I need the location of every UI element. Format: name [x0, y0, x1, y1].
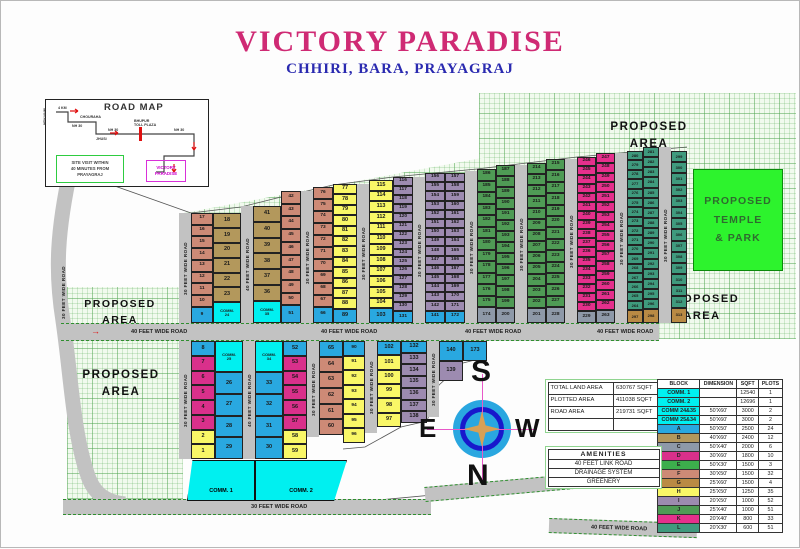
plot-cell-12: 12 — [191, 272, 213, 284]
plot-cell-40: 40 — [253, 222, 281, 238]
plot-cell-95: 95 — [343, 414, 365, 429]
plot-cell-228: 228 — [546, 307, 565, 323]
road-label: 40 FEET WIDE ROAD — [131, 329, 187, 335]
commercial-block: COMM. 2 — [255, 460, 347, 501]
plot-cell-143: 143 — [425, 292, 445, 301]
plot-cell-38: 38 — [253, 253, 281, 269]
plot-cell-248: 248 — [596, 163, 615, 173]
plot-cell-26: 26 — [215, 372, 243, 394]
plot-cell-COMM.-24: COMM. 24 — [213, 302, 241, 323]
plot-cell-304: 304 — [671, 207, 687, 218]
plot-cell-266: 266 — [627, 282, 643, 291]
road-vertical: 30 FEET WIDE ROAD — [179, 213, 191, 323]
plot-cell-280: 280 — [627, 151, 643, 160]
site-visit-note: SITE VISIT WITHIN 40 MINUTES FROM PRAYAG… — [56, 155, 124, 183]
plot-cell-232: 232 — [577, 284, 596, 293]
plot-cell-31: 31 — [255, 416, 283, 438]
plot-cell-122: 122 — [393, 231, 413, 240]
plot-cell-197: 197 — [496, 275, 515, 286]
plot-cell-27: 27 — [215, 394, 243, 416]
plot-cell-309: 309 — [671, 263, 687, 274]
plot-cell-83: 83 — [333, 246, 357, 256]
plot-cell-220: 220 — [546, 216, 565, 227]
plot-cell-20: 20 — [213, 243, 241, 258]
plot-column: 17161514131211109 — [191, 213, 213, 323]
plot-cell-63: 63 — [319, 372, 343, 388]
plot-cell-196: 196 — [496, 264, 515, 275]
plot-cell-204: 204 — [527, 274, 546, 285]
plot-cell-284: 284 — [643, 177, 659, 187]
plot-cell-103: 103 — [369, 308, 393, 323]
plot-cell-223: 223 — [546, 250, 565, 261]
plot-cell-305: 305 — [671, 218, 687, 229]
plot-cell-88: 88 — [333, 298, 357, 308]
plot-cell-5: 5 — [191, 385, 215, 400]
plot-cell-221: 221 — [546, 227, 565, 238]
plot-cell-145: 145 — [425, 274, 445, 283]
plot-cell-162: 162 — [445, 219, 465, 228]
plot-cell-150: 150 — [425, 228, 445, 237]
legend-row: A50'X50'250024 — [658, 425, 783, 434]
plot-cell-80: 80 — [333, 215, 357, 225]
plot-cell-10: 10 — [191, 295, 213, 307]
plot-cell-86: 86 — [333, 278, 357, 288]
plot-cell-147: 147 — [425, 256, 445, 265]
plot-cell-301: 301 — [671, 173, 687, 184]
plot-cell-166: 166 — [445, 256, 465, 265]
legend-table: BLOCKDIMENSIONSQFTPLOTSCOMM. 1125401COMM… — [657, 379, 783, 533]
plot-cell-237: 237 — [577, 238, 596, 247]
plot-cell-215: 215 — [546, 159, 565, 170]
plot-cell-299: 299 — [671, 151, 687, 162]
plot-cell-90: 90 — [343, 341, 365, 356]
legend-row: H25'X50'125035 — [658, 488, 783, 497]
legend-row: K20'X40'80033 — [658, 515, 783, 524]
plot-cell-229: 229 — [577, 311, 596, 323]
plot-cell-132: 132 — [401, 341, 427, 353]
legend-row: F30'X50'150032 — [658, 470, 783, 479]
plot-cell-200: 200 — [496, 308, 515, 323]
plot-column: 181920212223COMM. 24 — [213, 213, 241, 323]
plot-cell-69: 69 — [313, 271, 333, 283]
plot-cell-129: 129 — [393, 293, 413, 302]
legend-row: I20'X50'100052 — [658, 497, 783, 506]
plot-cell-99: 99 — [377, 384, 401, 398]
plot-cell-181: 181 — [477, 227, 496, 239]
plot-column: 186185184183182181180179178177176175174 — [477, 169, 496, 323]
plot-cell-178: 178 — [477, 261, 496, 273]
plot-cell-33: 33 — [255, 372, 283, 394]
plot-cell-167: 167 — [445, 265, 465, 274]
plot-cell-177: 177 — [477, 273, 496, 285]
plot-cell-241: 241 — [577, 202, 596, 211]
compass-rose — [453, 400, 511, 458]
plot-cell-COMM.-35: COMM. 35 — [253, 301, 281, 323]
plot-cell-76: 76 — [313, 187, 333, 199]
plot-cell-213: 213 — [527, 174, 546, 185]
plot-cell-8: 8 — [191, 341, 215, 356]
plot-cell-48: 48 — [281, 267, 301, 280]
road-vertical: 30 FEET WIDE ROAD — [357, 184, 369, 323]
road-map-label: NH 30 — [108, 129, 118, 133]
plot-cell-29: 29 — [215, 437, 243, 459]
plot-cell-28: 28 — [215, 416, 243, 438]
plot-cell-252: 252 — [596, 202, 615, 212]
plot-cell-202: 202 — [527, 297, 546, 308]
plot-cell-84: 84 — [333, 257, 357, 267]
plot-cell-210: 210 — [527, 208, 546, 219]
legend-row: D30'X60'180010 — [658, 452, 783, 461]
plot-cell-289: 289 — [643, 228, 659, 238]
plot-cell-236: 236 — [577, 247, 596, 256]
plot-cell-251: 251 — [596, 192, 615, 202]
plot-cell-188: 188 — [496, 176, 515, 187]
plot-cell-293: 293 — [643, 269, 659, 279]
plot-cell-92: 92 — [343, 370, 365, 385]
plot-cell-151: 151 — [425, 219, 445, 228]
plot-cell-52: 52 — [283, 341, 307, 356]
road-vertical: 40 FEET WIDE ROAD — [241, 206, 253, 323]
plot-cell-198: 198 — [496, 286, 515, 297]
plot-cell-126: 126 — [393, 266, 413, 275]
plot-cell-303: 303 — [671, 196, 687, 207]
plot-cell-261: 261 — [596, 290, 615, 300]
plot-cell-81: 81 — [333, 226, 357, 236]
plot-cell-46: 46 — [281, 242, 301, 255]
plot-cell-64: 64 — [319, 357, 343, 373]
plot-cell-21: 21 — [213, 258, 241, 273]
road-vertical: 30 FEET WIDE ROAD — [515, 165, 527, 323]
plot-cell-206: 206 — [527, 252, 546, 263]
road-vertical: 30 FEET WIDE ROAD — [301, 191, 313, 323]
plot-cell-107: 107 — [369, 266, 393, 277]
road-vertical: 30 FEET WIDE ROAD — [365, 341, 377, 433]
plot-cell-240: 240 — [577, 211, 596, 220]
plot-column: 102101100999897 — [377, 341, 401, 427]
plot-cell-311: 311 — [671, 285, 687, 296]
site-plan-page: { "title": "VICTORY PARADISE", "subtitle… — [0, 0, 800, 548]
plot-cell-144: 144 — [425, 283, 445, 292]
plot-cell-270: 270 — [627, 245, 643, 254]
plot-cell-125: 125 — [393, 257, 413, 266]
plot-cell-39: 39 — [253, 238, 281, 254]
compass-north: N — [467, 459, 489, 493]
plot-cell-208: 208 — [527, 230, 546, 241]
plot-cell-161: 161 — [445, 210, 465, 219]
legend-row: C50'X40'20006 — [658, 443, 783, 452]
plot-cell-312: 312 — [671, 296, 687, 307]
plot-cell-190: 190 — [496, 198, 515, 209]
plot-cell-242: 242 — [577, 193, 596, 202]
area-table-frame: TOTAL LAND AREA630767 SQFTPLOTTED AREA41… — [545, 379, 664, 433]
amenities-table: AMENITIES40 FEET LINK ROADDRAINAGE SYSTE… — [548, 449, 660, 487]
compass-south: S — [471, 355, 491, 389]
plot-column: 2993003013023033043053063073083093103113… — [671, 151, 687, 323]
plot-cell-47: 47 — [281, 255, 301, 268]
plot-cell-59: 59 — [283, 444, 307, 459]
plot-cell-114: 114 — [369, 191, 393, 202]
plot-cell-286: 286 — [643, 198, 659, 208]
plot-cell-259: 259 — [596, 271, 615, 281]
area-table-row — [548, 418, 661, 430]
road-map-inset: ROAD MAP NEW NAINI SITE VISIT WITHIN 40 … — [45, 99, 209, 187]
plot-cell-235: 235 — [577, 257, 596, 266]
plot-cell-9: 9 — [191, 307, 213, 323]
plot-cell-260: 260 — [596, 280, 615, 290]
compass-east: E — [419, 413, 436, 444]
plot-cell-282: 282 — [643, 157, 659, 167]
plot-cell-43: 43 — [281, 204, 301, 217]
plot-cell-13: 13 — [191, 260, 213, 272]
plot-cell-265: 265 — [627, 292, 643, 301]
plot-cell-246: 246 — [577, 157, 596, 166]
road-map-label: NH 30 — [72, 125, 82, 129]
legend-row: COMM 25&3450'X60'30002 — [658, 416, 783, 425]
plot-cell-COMM.-34: COMM. 34 — [255, 341, 283, 372]
plot-cell-170: 170 — [445, 292, 465, 301]
road-label: 40 FEET WIDE ROAD — [591, 524, 647, 532]
plot-cell-105: 105 — [369, 287, 393, 298]
plot-cell-185: 185 — [477, 181, 496, 193]
plot-cell-89: 89 — [333, 309, 357, 323]
plot-column: COMM. 3433323130 — [255, 341, 283, 459]
plot-cell-169: 169 — [445, 283, 465, 292]
plot-cell-113: 113 — [369, 201, 393, 212]
plot-cell-269: 269 — [627, 254, 643, 263]
legend-row: B40'X60'240012 — [658, 434, 783, 443]
plot-cell-118: 118 — [393, 195, 413, 204]
amenities-title-row: AMENITIES — [548, 449, 659, 459]
compass: S N E W — [409, 353, 559, 503]
proposed-area-label: PROPOSED AREA — [75, 367, 167, 402]
road-vertical: 30 FEET WIDE ROAD — [307, 341, 319, 437]
plot-cell-152: 152 — [425, 210, 445, 219]
plot-cell-19: 19 — [213, 228, 241, 243]
plot-cell-279: 279 — [627, 160, 643, 169]
plot-cell-62: 62 — [319, 388, 343, 404]
plot-cell-124: 124 — [393, 249, 413, 258]
road-map-label: 4 KM — [58, 107, 67, 111]
plot-cell-142: 142 — [425, 301, 445, 310]
plot-cell-298: 298 — [643, 309, 659, 323]
plot-cell-276: 276 — [627, 189, 643, 198]
plot-cell-149: 149 — [425, 237, 445, 246]
plot-cell-186: 186 — [477, 169, 496, 181]
plot-cell-51: 51 — [281, 305, 301, 323]
plot-column: 2152162172182192202212222232242252262272… — [546, 159, 565, 323]
amenities-frame: AMENITIES40 FEET LINK ROADDRAINAGE SYSTE… — [545, 446, 662, 489]
plot-cell-123: 123 — [393, 240, 413, 249]
plot-cell-155: 155 — [425, 182, 445, 191]
plot-cell-295: 295 — [643, 289, 659, 299]
plot-column: 1871881891901911921931941951961971981992… — [496, 165, 515, 323]
plot-column: 414039383736COMM. 35 — [253, 206, 281, 323]
plot-cell-296: 296 — [643, 299, 659, 309]
plot-cell-233: 233 — [577, 275, 596, 284]
plot-cell-87: 87 — [333, 288, 357, 298]
plot-cell-165: 165 — [445, 246, 465, 255]
legend-row: J25'X40'100051 — [658, 506, 783, 515]
legend-header-row: BLOCKDIMENSIONSQFTPLOTS — [658, 380, 783, 389]
plot-cell-146: 146 — [425, 265, 445, 274]
road-map-label: CHOURAHA — [80, 116, 101, 120]
plot-cell-199: 199 — [496, 297, 515, 308]
plot-cell-61: 61 — [319, 404, 343, 420]
plot-cell-4: 4 — [191, 400, 215, 415]
plot-cell-230: 230 — [577, 302, 596, 311]
legend-row: COMM 24&3550'X60'30002 — [658, 407, 783, 416]
plot-cell-294: 294 — [643, 279, 659, 289]
plot-cell-172: 172 — [445, 311, 465, 323]
plot-cell-195: 195 — [496, 253, 515, 264]
plot-cell-271: 271 — [627, 235, 643, 244]
plot-cell-18: 18 — [213, 213, 241, 228]
plot-cell-164: 164 — [445, 237, 465, 246]
plot-column: 2802792782772762752742732722712702692682… — [627, 151, 643, 323]
plot-column: 2472482492502512522532542552562572582592… — [596, 153, 615, 323]
plot-column: 2142132122112102092082072062052042032022… — [527, 163, 546, 323]
plot-cell-257: 257 — [596, 251, 615, 261]
plot-cell-56: 56 — [283, 400, 307, 415]
plot-cell-222: 222 — [546, 239, 565, 250]
plot-cell-290: 290 — [643, 238, 659, 248]
plot-cell-6: 6 — [191, 371, 215, 386]
plot-cell-97: 97 — [377, 413, 401, 427]
plot-cell-70: 70 — [313, 259, 333, 271]
plot-cell-255: 255 — [596, 231, 615, 241]
plot-cell-288: 288 — [643, 218, 659, 228]
plot-cell-211: 211 — [527, 196, 546, 207]
compass-west: W — [515, 413, 540, 444]
plot-cell-141: 141 — [425, 311, 445, 323]
road-map-label: JHUSI — [96, 138, 107, 142]
plot-cell-14: 14 — [191, 248, 213, 260]
plot-cell-224: 224 — [546, 262, 565, 273]
plot-cell-160: 160 — [445, 201, 465, 210]
plot-cell-302: 302 — [671, 185, 687, 196]
plot-cell-174: 174 — [477, 307, 496, 323]
area-table-row: PLOTTED AREA411038 SQFT — [548, 394, 661, 406]
plot-cell-274: 274 — [627, 207, 643, 216]
plot-cell-57: 57 — [283, 415, 307, 430]
plot-cell-128: 128 — [393, 284, 413, 293]
plot-cell-60: 60 — [319, 419, 343, 435]
red-arrow-icon: → — [91, 327, 100, 336]
plot-cell-73: 73 — [313, 223, 333, 235]
plot-cell-131: 131 — [393, 311, 413, 323]
plot-cell-91: 91 — [343, 356, 365, 371]
plot-cell-179: 179 — [477, 250, 496, 262]
legend-row: L20'X30'60051 — [658, 524, 783, 533]
road-vertical: 40 FEET WIDE ROAD — [243, 341, 255, 459]
plot-cell-154: 154 — [425, 191, 445, 200]
plot-cell-158: 158 — [445, 182, 465, 191]
plot-cell-263: 263 — [596, 310, 615, 323]
plot-cell-55: 55 — [283, 385, 307, 400]
road-vertical: 30 FEET WIDE ROAD — [659, 147, 671, 323]
plot-cell-121: 121 — [393, 222, 413, 231]
road-map-label: NH 30 — [174, 129, 184, 133]
road-vertical: 30 FEET WIDE ROAD — [565, 159, 577, 323]
plot-cell-102: 102 — [377, 341, 401, 355]
plot-cell-44: 44 — [281, 216, 301, 229]
plot-cell-65: 65 — [319, 341, 343, 357]
plot-column: 656463626160 — [319, 341, 343, 435]
plot-cell-108: 108 — [369, 255, 393, 266]
plot-cell-262: 262 — [596, 300, 615, 310]
proposed-temple-park-box: PROPOSED TEMPLE & PARK — [693, 169, 783, 271]
plot-cell-163: 163 — [445, 228, 465, 237]
plot-cell-15: 15 — [191, 236, 213, 248]
plot-cell-256: 256 — [596, 241, 615, 251]
plot-cell-157: 157 — [445, 173, 465, 182]
plot-cell-234: 234 — [577, 266, 596, 275]
plot-column: 90919293949596 — [343, 341, 365, 443]
road-30ft-left-label: 30 FEET WIDE ROAD — [57, 247, 69, 337]
plot-cell-98: 98 — [377, 398, 401, 412]
plot-column: 1561551541531521511501491481471461451441… — [425, 173, 445, 323]
plot-cell-119: 119 — [393, 204, 413, 213]
plot-cell-244: 244 — [577, 175, 596, 184]
legend-row: COMM. 1125401 — [658, 389, 783, 398]
plot-cell-42: 42 — [281, 191, 301, 204]
legend-row: G25'X60'15004 — [658, 479, 783, 488]
plot-cell-306: 306 — [671, 229, 687, 240]
plot-column: 77787980818283848586878889 — [333, 184, 357, 323]
plot-cell-183: 183 — [477, 204, 496, 216]
plot-cell-273: 273 — [627, 217, 643, 226]
road-vertical: 30 FEET WIDE ROAD — [465, 171, 477, 323]
plot-cell-153: 153 — [425, 201, 445, 210]
plot-cell-130: 130 — [393, 302, 413, 311]
plot-cell-41: 41 — [253, 206, 281, 222]
plot-cell-3: 3 — [191, 415, 215, 430]
plot-cell-109: 109 — [369, 244, 393, 255]
road-label: 40 FEET WIDE ROAD — [597, 329, 653, 335]
plot-cell-205: 205 — [527, 263, 546, 274]
plot-cell-201: 201 — [527, 308, 546, 323]
plot-cell-307: 307 — [671, 241, 687, 252]
plot-cell-267: 267 — [627, 273, 643, 282]
plot-cell-74: 74 — [313, 211, 333, 223]
plot-cell-192: 192 — [496, 220, 515, 231]
plot-cell-189: 189 — [496, 187, 515, 198]
plot-column: 42434445464748495051 — [281, 191, 301, 323]
plot-cell-191: 191 — [496, 209, 515, 220]
plot-cell-212: 212 — [527, 185, 546, 196]
plot-cell-258: 258 — [596, 261, 615, 271]
plot-cell-292: 292 — [643, 259, 659, 269]
plot-cell-COMM.-25: COMM. 25 — [215, 341, 243, 372]
plot-cell-37: 37 — [253, 269, 281, 285]
plot-cell-71: 71 — [313, 247, 333, 259]
amenities-item-row: DRAINAGE SYSTEM — [548, 468, 659, 477]
area-table-row: ROAD AREA219731 SQFT — [548, 406, 661, 418]
plot-cell-127: 127 — [393, 275, 413, 284]
plot-cell-176: 176 — [477, 284, 496, 296]
plot-cell-32: 32 — [255, 394, 283, 416]
plot-cell-278: 278 — [627, 170, 643, 179]
road-horizontal: 30 FEET WIDE ROAD — [63, 499, 431, 515]
plot-cell-68: 68 — [313, 283, 333, 295]
plot-cell-253: 253 — [596, 212, 615, 222]
plot-cell-287: 287 — [643, 208, 659, 218]
plot-cell-277: 277 — [627, 179, 643, 188]
plot-cell-120: 120 — [393, 213, 413, 222]
plot-cell-115: 115 — [369, 180, 393, 191]
plot-cell-254: 254 — [596, 222, 615, 232]
plot-cell-100: 100 — [377, 370, 401, 384]
